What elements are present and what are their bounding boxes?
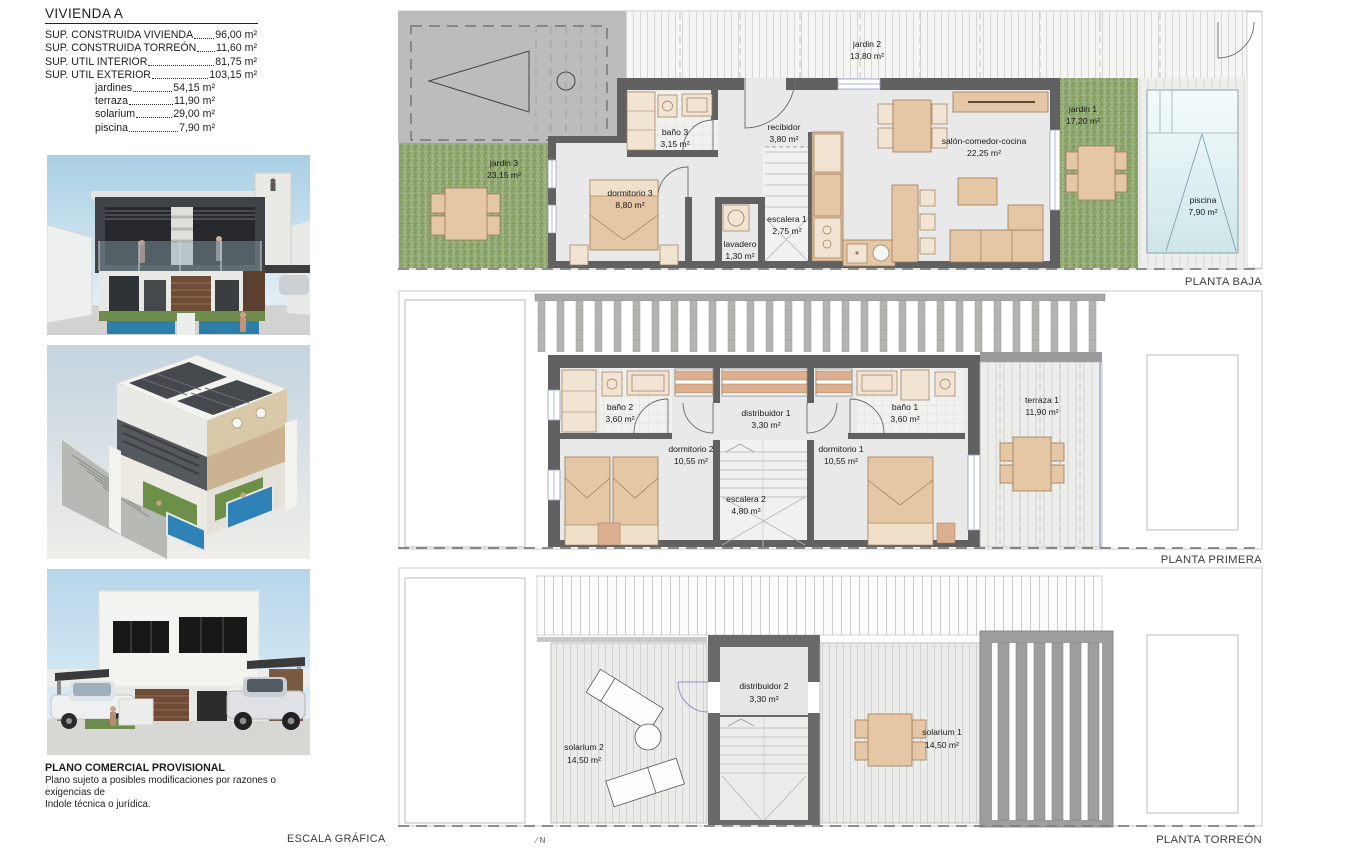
surface-value: 103,15 m²	[209, 69, 257, 81]
svg-text:jardin 1: jardin 1	[1068, 104, 1097, 114]
svg-text:3,80 m²: 3,80 m²	[769, 134, 798, 144]
page-title: VIVIENDA A	[45, 6, 260, 21]
dot-leader	[197, 51, 215, 52]
svg-text:3,30 m²: 3,30 m²	[751, 420, 780, 430]
svg-text:terraza 1: terraza 1	[1025, 395, 1059, 405]
svg-text:13,80 m²: 13,80 m²	[850, 51, 884, 61]
svg-text:distribuidor 1: distribuidor 1	[741, 408, 790, 418]
plan-sheet: VIVIENDA A SUP. CONSTRUIDA VIVIENDA 96,0…	[0, 0, 1360, 850]
render-front-exterior	[47, 155, 310, 335]
render-rear-exterior	[47, 569, 310, 755]
svg-text:22,25 m²: 22,25 m²	[967, 148, 1001, 158]
surface-label: SUP. CONSTRUIDA TORREÓN	[45, 42, 196, 54]
svg-text:escalera 1: escalera 1	[767, 214, 807, 224]
svg-text:jardin 3: jardin 3	[489, 158, 518, 168]
svg-text:17,20 m²: 17,20 m²	[1066, 116, 1100, 126]
svg-text:baño 1: baño 1	[892, 402, 919, 412]
svg-text:solarium 2: solarium 2	[564, 742, 604, 752]
svg-text:10,55 m²: 10,55 m²	[824, 456, 858, 466]
floor-plan-planta-torreon: solarium 214,50 m² distribuidor 23,30 m²…	[396, 561, 1268, 850]
dot-leader	[133, 91, 172, 92]
surface-label: SUP. UTIL INTERIOR	[45, 56, 147, 68]
pergola-slats	[535, 294, 1105, 352]
surface-subrow: solarium 29,00 m²	[95, 107, 215, 120]
surface-value: 96,00 m²	[215, 29, 257, 41]
terraza-rail	[980, 352, 1102, 362]
svg-text:escalera 2: escalera 2	[726, 494, 766, 504]
washer-lavadero	[723, 205, 749, 231]
room-solarium-2	[537, 637, 707, 823]
svg-text:baño 3: baño 3	[662, 127, 689, 137]
entry-walkway	[1247, 12, 1262, 268]
dot-leader	[129, 131, 178, 132]
stairs-torreon	[708, 717, 820, 825]
dot-leader	[148, 65, 214, 66]
dot-leader	[129, 104, 173, 105]
svg-text:14,50 m²: 14,50 m²	[925, 740, 959, 750]
svg-text:10,55 m²: 10,55 m²	[674, 456, 708, 466]
surface-row: SUP. UTIL EXTERIOR 103,15 m²	[45, 68, 257, 81]
surface-row: SUP. CONSTRUIDA VIVIENDA 96,00 m²	[45, 28, 257, 41]
svg-text:7,90 m²: 7,90 m²	[1188, 207, 1217, 217]
neighbor-lot-right	[1147, 635, 1238, 813]
svg-text:jardin 2: jardin 2	[852, 39, 881, 49]
surface-subrow: piscina 7,90 m²	[95, 120, 215, 133]
surface-label: solarium	[95, 108, 135, 120]
svg-text:3,30 m²: 3,30 m²	[749, 694, 778, 704]
svg-text:4,80 m²: 4,80 m²	[731, 506, 760, 516]
neighbor-lot-right	[1147, 355, 1238, 530]
svg-text:salón-comedor-cocina: salón-comedor-cocina	[942, 136, 1027, 146]
surface-label: SUP. CONSTRUIDA VIVIENDA	[45, 29, 193, 41]
title-rule	[45, 23, 258, 24]
disclaimer-block: PLANO COMERCIAL PROVISIONAL Plano sujeto…	[45, 762, 295, 811]
wardrobes	[675, 369, 852, 396]
disclaimer-line: Plano sujeto a posibles modificaciones p…	[45, 775, 295, 799]
graphic-scale-label: ESCALA GRÁFICA	[287, 833, 386, 845]
surface-row: SUP. CONSTRUIDA TORREÓN 11,60 m²	[45, 41, 257, 54]
svg-text:lavadero: lavadero	[724, 239, 757, 249]
round-table	[635, 724, 661, 750]
surface-subrow: jardines 54,15 m²	[95, 81, 215, 94]
disclaimer-title: PLANO COMERCIAL PROVISIONAL	[45, 762, 295, 774]
dot-leader	[152, 78, 208, 79]
plan-caption-torreon: PLANTA TORREÓN	[1156, 833, 1262, 846]
open-pergola-strip	[537, 576, 1102, 635]
surface-value: 81,75 m²	[215, 56, 257, 68]
surface-row: SUP. UTIL INTERIOR 81,75 m²	[45, 54, 257, 67]
svg-text:3,60 m²: 3,60 m²	[605, 414, 634, 424]
disclaimer-line: Indole técnica o jurídica.	[45, 799, 295, 811]
svg-text:8,80 m²: 8,80 m²	[615, 200, 644, 210]
svg-text:23,15 m²: 23,15 m²	[487, 170, 521, 180]
svg-text:dormitorio 2: dormitorio 2	[668, 444, 714, 454]
dot-leader	[194, 38, 214, 39]
render-aerial-view	[47, 345, 310, 559]
svg-text:distribuidor 2: distribuidor 2	[739, 681, 788, 691]
svg-text:recibidor: recibidor	[768, 122, 801, 132]
surface-label: SUP. UTIL EXTERIOR	[45, 69, 151, 81]
svg-text:3,15 m²: 3,15 m²	[660, 139, 689, 149]
neighbor-lot-left	[405, 300, 525, 547]
dot-leader	[136, 117, 172, 118]
aerial-render-image	[47, 345, 310, 559]
svg-text:14,50 m²: 14,50 m²	[567, 755, 601, 765]
surface-value: 11,60 m²	[216, 42, 257, 54]
rear-render-image	[47, 569, 310, 755]
svg-text:piscina: piscina	[1190, 195, 1217, 205]
svg-text:dormitorio 1: dormitorio 1	[818, 444, 864, 454]
svg-text:2,75 m²: 2,75 m²	[772, 226, 801, 236]
surface-subrow: terraza 11,90 m²	[95, 94, 215, 107]
svg-text:1,30 m²: 1,30 m²	[725, 251, 754, 261]
room-piscina	[1147, 90, 1238, 253]
surface-label: piscina	[95, 122, 128, 134]
svg-text:baño 2: baño 2	[607, 402, 634, 412]
floor-plan-planta-primera: baño 23,60 m² dormitorio 210,55 m² distr…	[396, 286, 1268, 568]
neighbor-lot-left	[405, 578, 525, 823]
driveway-area	[398, 11, 626, 143]
room-jardin-3	[399, 143, 548, 268]
front-render-image	[47, 155, 310, 335]
surface-value: 7,90 m²	[179, 122, 215, 134]
room-terraza-1	[980, 362, 1102, 547]
floor-plan-planta-baja: jardin 213,80 m² jardin 323,15 m² baño 3…	[396, 6, 1268, 300]
surface-label: jardines	[95, 82, 132, 94]
svg-text:3,60 m²: 3,60 m²	[890, 414, 919, 424]
room-jardin-2	[626, 12, 1247, 78]
svg-text:dormitorio 3: dormitorio 3	[607, 188, 653, 198]
title-block: VIVIENDA A SUP. CONSTRUIDA VIVIENDA 96,0…	[45, 6, 260, 134]
surface-label: terraza	[95, 95, 128, 107]
svg-text:11,90 m²: 11,90 m²	[1025, 407, 1058, 417]
surface-value: 54,15 m²	[173, 82, 215, 94]
kitchen-island	[892, 185, 935, 262]
surface-value: 29,00 m²	[173, 108, 215, 120]
pergola-frame	[980, 631, 1113, 827]
surface-value: 11,90 m²	[174, 95, 215, 107]
svg-text:solarium 1: solarium 1	[922, 727, 962, 737]
